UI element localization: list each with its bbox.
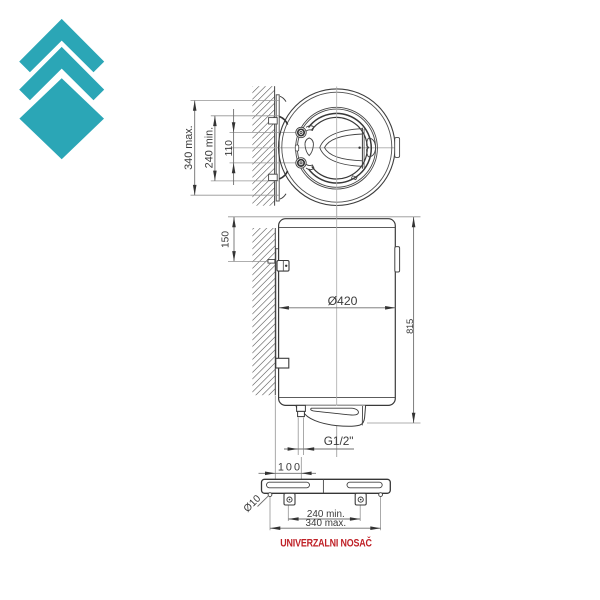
svg-text:150: 150 <box>221 231 232 248</box>
svg-text:815: 815 <box>404 319 415 334</box>
svg-text:240 min.: 240 min. <box>203 127 215 168</box>
svg-text:Ø10: Ø10 <box>242 493 264 515</box>
svg-text:G1/2": G1/2" <box>324 434 354 448</box>
svg-text:UNIVERZALNI NOSAČ: UNIVERZALNI NOSAČ <box>280 537 372 550</box>
svg-text:100: 100 <box>278 461 302 473</box>
svg-text:340 max.: 340 max. <box>305 518 346 529</box>
svg-text:340 max.: 340 max. <box>183 125 195 169</box>
svg-text:Ø420: Ø420 <box>328 294 358 308</box>
svg-text:110: 110 <box>224 140 235 157</box>
